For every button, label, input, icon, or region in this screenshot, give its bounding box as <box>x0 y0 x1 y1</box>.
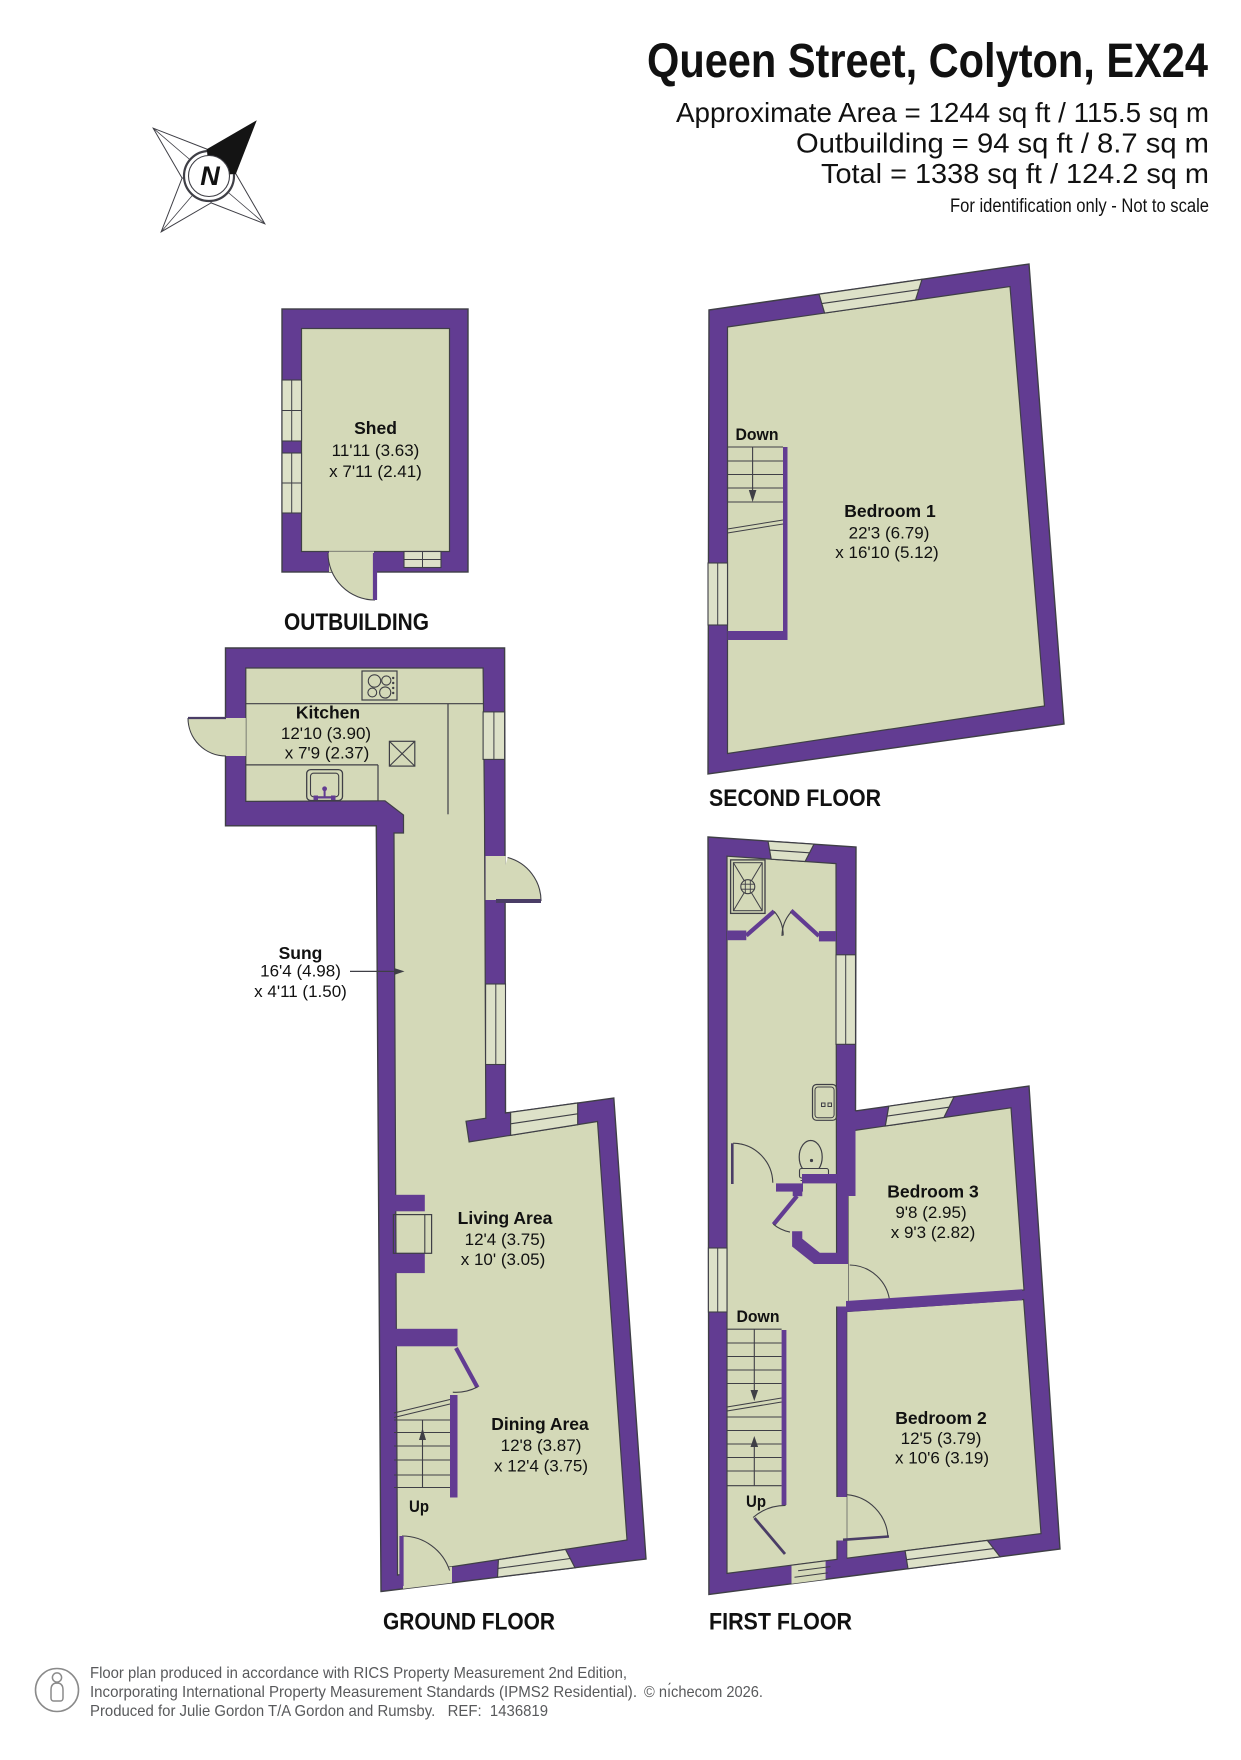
svg-text:Down: Down <box>736 425 779 444</box>
svg-text:Up: Up <box>409 1497 429 1516</box>
svg-text:12'4 (3.75): 12'4 (3.75) <box>465 1230 546 1249</box>
svg-text:x 4'11 (1.50): x 4'11 (1.50) <box>254 982 347 1001</box>
svg-text:Sung: Sung <box>279 943 323 963</box>
svg-text:For identification only - Not: For identification only - Not to scale <box>950 196 1209 217</box>
svg-text:x 7'9 (2.37): x 7'9 (2.37) <box>285 744 370 763</box>
svg-text:12'8 (3.87): 12'8 (3.87) <box>501 1436 582 1455</box>
svg-text:12'5 (3.79): 12'5 (3.79) <box>901 1429 982 1448</box>
svg-text:12'10 (3.90): 12'10 (3.90) <box>281 724 371 743</box>
svg-text:x 10' (3.05): x 10' (3.05) <box>461 1250 546 1269</box>
svg-text:FIRST FLOOR: FIRST FLOOR <box>709 1609 852 1636</box>
svg-text:x 9'3 (2.82): x 9'3 (2.82) <box>891 1223 976 1242</box>
svg-text:11'11 (3.63): 11'11 (3.63) <box>332 441 420 460</box>
svg-text:Shed: Shed <box>354 418 397 438</box>
svg-text:Approximate Area = 1244 sq ft: Approximate Area = 1244 sq ft / 115.5 sq… <box>676 97 1209 128</box>
svg-text:Total = 1338 sq ft / 124.2 sq: Total = 1338 sq ft / 124.2 sq m <box>821 158 1209 189</box>
svg-text:Bedroom 1: Bedroom 1 <box>844 501 936 521</box>
svg-text:16'4 (4.98): 16'4 (4.98) <box>260 962 341 981</box>
svg-text:x 7'11 (2.41): x 7'11 (2.41) <box>329 462 422 481</box>
svg-text:© nı́checom 2026.: © nı́checom 2026. <box>644 1681 763 1701</box>
svg-text:Dining Area: Dining Area <box>491 1414 589 1434</box>
svg-text:x 16'10 (5.12): x 16'10 (5.12) <box>835 543 938 562</box>
svg-text:Down: Down <box>737 1307 780 1326</box>
svg-text:x 12'4 (3.75): x 12'4 (3.75) <box>494 1457 588 1476</box>
svg-text:Incorporating International Pr: Incorporating International Property Mea… <box>90 1684 637 1701</box>
svg-text:Floor plan produced in accorda: Floor plan produced in accordance with R… <box>90 1665 627 1682</box>
svg-text:x 10'6 (3.19): x 10'6 (3.19) <box>895 1449 989 1468</box>
svg-text:9'8 (2.95): 9'8 (2.95) <box>895 1203 966 1222</box>
svg-text:Queen Street, Colyton, EX24: Queen Street, Colyton, EX24 <box>647 35 1208 88</box>
svg-text:GROUND FLOOR: GROUND FLOOR <box>383 1609 555 1636</box>
svg-text:Bedroom 2: Bedroom 2 <box>895 1408 987 1428</box>
svg-text:Produced for Julie Gordon T/A: Produced for Julie Gordon T/A Gordon and… <box>90 1703 548 1720</box>
svg-text:Living Area: Living Area <box>458 1208 553 1228</box>
svg-text:Bedroom 3: Bedroom 3 <box>887 1182 979 1202</box>
svg-text:SECOND FLOOR: SECOND FLOOR <box>709 785 881 812</box>
svg-text:N: N <box>200 161 220 191</box>
svg-text:Outbuilding = 94 sq ft / 8.7 s: Outbuilding = 94 sq ft / 8.7 sq m <box>796 128 1209 159</box>
svg-text:Kitchen: Kitchen <box>296 703 360 723</box>
svg-text:Up: Up <box>746 1492 766 1511</box>
svg-text:OUTBUILDING: OUTBUILDING <box>284 609 429 636</box>
svg-text:22'3 (6.79): 22'3 (6.79) <box>849 524 930 543</box>
